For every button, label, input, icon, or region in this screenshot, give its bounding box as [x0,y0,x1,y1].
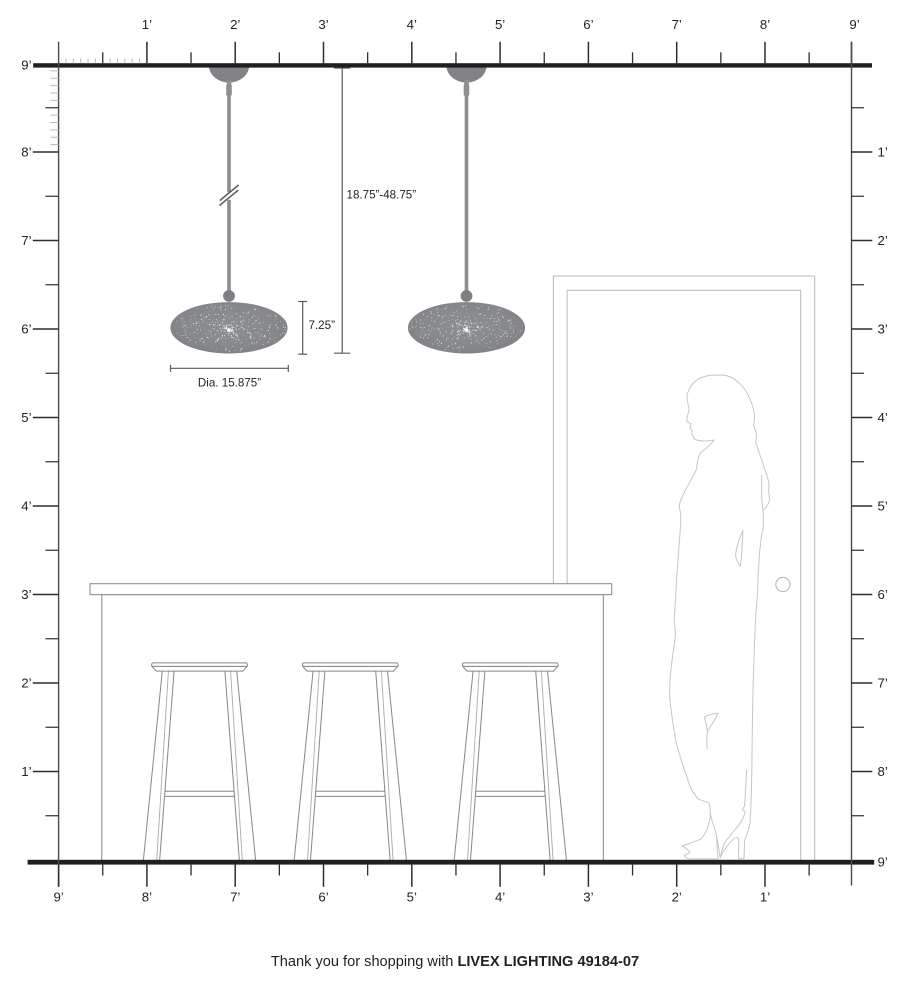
svg-text:3’: 3’ [318,17,328,32]
svg-text:1’: 1’ [760,890,770,905]
svg-text:1’: 1’ [878,145,888,160]
svg-text:9’: 9’ [21,58,31,73]
svg-text:4’: 4’ [495,890,505,905]
svg-text:1’: 1’ [21,764,31,779]
svg-text:6’: 6’ [21,322,31,337]
svg-text:4’: 4’ [21,499,31,514]
svg-text:6’: 6’ [878,587,888,602]
svg-text:2’: 2’ [672,890,682,905]
svg-text:7’: 7’ [21,233,31,248]
svg-text:6’: 6’ [318,890,328,905]
svg-text:Thank you for shopping with LI: Thank you for shopping with LIVEX LIGHTI… [271,954,639,970]
svg-text:4’: 4’ [878,410,888,425]
svg-text:18.75”-48.75”: 18.75”-48.75” [347,189,417,202]
svg-text:9’: 9’ [53,890,63,905]
svg-text:3’: 3’ [583,890,593,905]
svg-text:7’: 7’ [230,890,240,905]
svg-text:1’: 1’ [142,17,152,32]
svg-text:2’: 2’ [21,676,31,691]
svg-text:8’: 8’ [142,890,152,905]
svg-text:6’: 6’ [583,17,593,32]
svg-text:2’: 2’ [878,233,888,248]
svg-text:Dia. 15.875”: Dia. 15.875” [198,377,261,390]
svg-text:2’: 2’ [230,17,240,32]
svg-text:8’: 8’ [21,145,31,160]
svg-text:4’: 4’ [407,17,417,32]
svg-text:7.25”: 7.25” [309,319,336,332]
svg-text:8’: 8’ [878,764,888,779]
svg-text:7’: 7’ [672,17,682,32]
svg-text:9’: 9’ [849,17,859,32]
svg-text:5’: 5’ [495,17,505,32]
svg-text:5’: 5’ [878,499,888,514]
svg-text:7’: 7’ [878,676,888,691]
svg-text:9’: 9’ [878,855,888,870]
svg-text:3’: 3’ [878,322,888,337]
svg-text:5’: 5’ [407,890,417,905]
svg-text:8’: 8’ [760,17,770,32]
svg-text:5’: 5’ [21,410,31,425]
svg-text:3’: 3’ [21,587,31,602]
